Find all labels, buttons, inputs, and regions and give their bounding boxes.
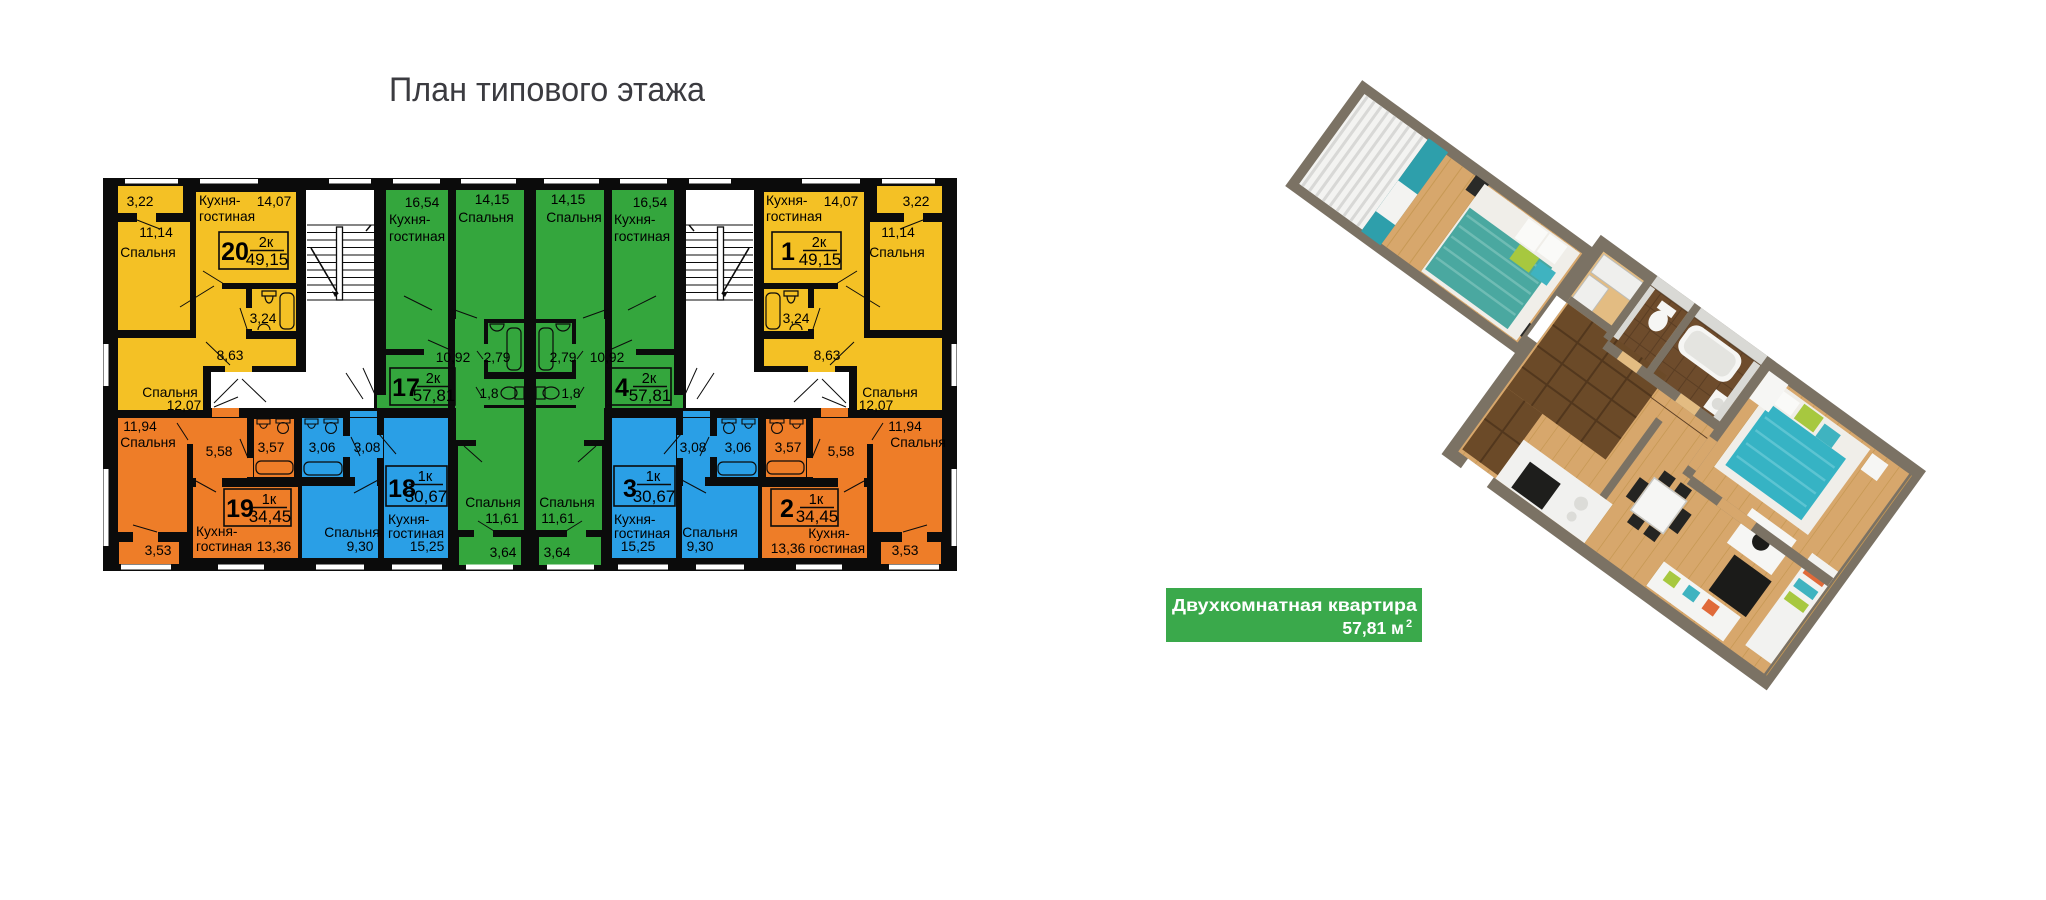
svg-text:3,64: 3,64 <box>490 545 517 560</box>
svg-text:30,67: 30,67 <box>633 487 676 506</box>
svg-text:5,58: 5,58 <box>828 444 855 459</box>
svg-text:Кухня-: Кухня- <box>389 212 431 227</box>
svg-text:2к: 2к <box>426 371 441 387</box>
svg-text:10,92: 10,92 <box>590 350 625 365</box>
svg-text:Спальня: Спальня <box>465 495 520 510</box>
svg-text:Спальня: Спальня <box>682 525 737 540</box>
svg-text:Спальня: Спальня <box>869 245 924 260</box>
svg-text:1к: 1к <box>262 492 277 508</box>
svg-text:14,07: 14,07 <box>257 194 292 209</box>
svg-text:1к: 1к <box>418 469 433 485</box>
svg-text:11,94: 11,94 <box>123 419 157 434</box>
svg-text:14,15: 14,15 <box>551 192 586 207</box>
svg-text:гостиная: гостиная <box>766 209 822 224</box>
svg-text:57,81: 57,81 <box>629 386 672 405</box>
svg-text:13,36: 13,36 <box>257 539 292 554</box>
svg-text:Кухня-: Кухня- <box>199 193 241 208</box>
svg-text:3,22: 3,22 <box>903 194 930 209</box>
svg-text:5,58: 5,58 <box>206 444 233 459</box>
svg-text:3,53: 3,53 <box>145 543 172 558</box>
svg-text:2: 2 <box>1406 618 1412 630</box>
svg-text:49,15: 49,15 <box>246 250 289 269</box>
svg-text:15,25: 15,25 <box>621 539 656 554</box>
svg-text:8,63: 8,63 <box>814 348 841 363</box>
svg-text:гостиная: гостиная <box>199 209 255 224</box>
svg-text:1к: 1к <box>809 492 824 508</box>
svg-text:3,06: 3,06 <box>309 440 336 455</box>
svg-text:2,79: 2,79 <box>484 350 511 365</box>
svg-text:2: 2 <box>780 495 794 523</box>
svg-text:Кухня-: Кухня- <box>614 212 656 227</box>
svg-text:Спальня: Спальня <box>120 435 175 450</box>
svg-text:Спальня: Спальня <box>458 210 513 225</box>
svg-text:Спальня: Спальня <box>539 495 594 510</box>
svg-text:10,92: 10,92 <box>436 350 471 365</box>
svg-text:11,94: 11,94 <box>888 419 922 434</box>
svg-text:14,15: 14,15 <box>475 192 510 207</box>
svg-text:гостиная: гостиная <box>614 229 670 244</box>
svg-text:гостиная: гостиная <box>809 541 865 556</box>
svg-text:3,08: 3,08 <box>354 440 381 455</box>
svg-text:Спальня: Спальня <box>324 525 379 540</box>
svg-text:3,57: 3,57 <box>258 440 285 455</box>
svg-text:2к: 2к <box>259 235 274 251</box>
svg-text:34,45: 34,45 <box>796 507 839 526</box>
svg-text:8,63: 8,63 <box>217 348 244 363</box>
svg-text:Двухкомнатная квартира: Двухкомнатная квартира <box>1172 595 1417 615</box>
svg-text:3,24: 3,24 <box>783 311 810 326</box>
svg-text:11,14: 11,14 <box>881 225 915 240</box>
svg-text:3,64: 3,64 <box>544 545 571 560</box>
svg-text:гостиная: гостиная <box>389 229 445 244</box>
svg-text:3,06: 3,06 <box>725 440 752 455</box>
svg-text:15,25: 15,25 <box>410 539 445 554</box>
svg-text:14,07: 14,07 <box>824 194 859 209</box>
svg-text:План типового этажа: План типового этажа <box>389 71 705 109</box>
svg-text:2к: 2к <box>642 371 657 387</box>
svg-text:12,07: 12,07 <box>859 398 894 413</box>
svg-text:Кухня-: Кухня- <box>766 193 808 208</box>
svg-text:3,24: 3,24 <box>250 311 277 326</box>
svg-text:3,08: 3,08 <box>680 440 707 455</box>
svg-text:57,81: 57,81 <box>413 386 456 405</box>
svg-text:1,8: 1,8 <box>561 386 581 401</box>
svg-text:1,8: 1,8 <box>479 386 499 401</box>
svg-text:34,45: 34,45 <box>249 507 292 526</box>
svg-text:2,79: 2,79 <box>550 350 577 365</box>
svg-text:12,07: 12,07 <box>167 398 202 413</box>
svg-text:57,81 м: 57,81 м <box>1342 618 1404 638</box>
svg-text:13,36: 13,36 <box>771 541 806 556</box>
svg-text:9,30: 9,30 <box>687 539 714 554</box>
svg-text:Спальня: Спальня <box>120 245 175 260</box>
svg-text:Кухня-: Кухня- <box>388 512 430 527</box>
svg-text:49,15: 49,15 <box>799 250 842 269</box>
svg-text:16,54: 16,54 <box>633 195 668 210</box>
svg-text:11,61: 11,61 <box>485 511 519 526</box>
svg-text:3,57: 3,57 <box>775 440 802 455</box>
svg-text:2к: 2к <box>812 235 827 251</box>
svg-text:9,30: 9,30 <box>347 539 374 554</box>
svg-text:11,14: 11,14 <box>139 225 173 240</box>
svg-text:1к: 1к <box>646 469 661 485</box>
svg-text:3,22: 3,22 <box>127 194 154 209</box>
svg-text:11,61: 11,61 <box>541 511 575 526</box>
svg-text:Кухня-: Кухня- <box>808 526 850 541</box>
svg-text:1: 1 <box>781 238 795 266</box>
svg-text:30,67: 30,67 <box>405 487 448 506</box>
svg-text:16,54: 16,54 <box>405 195 440 210</box>
svg-text:Кухня-: Кухня- <box>614 512 656 527</box>
svg-text:3,53: 3,53 <box>892 543 919 558</box>
svg-text:Спальня: Спальня <box>546 210 601 225</box>
svg-text:4: 4 <box>615 374 629 402</box>
svg-text:гостиная: гостиная <box>196 539 252 554</box>
svg-text:Спальня: Спальня <box>890 435 945 450</box>
